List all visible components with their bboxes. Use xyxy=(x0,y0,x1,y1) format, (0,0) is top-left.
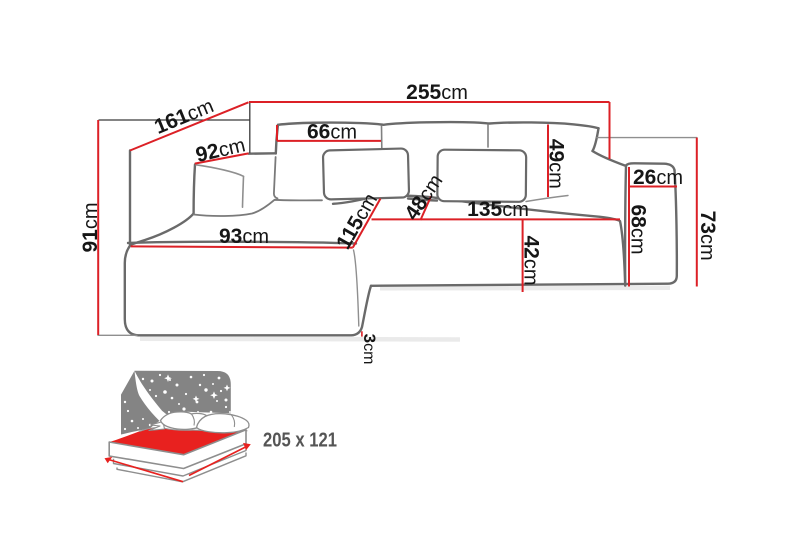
svg-text:42cm: 42cm xyxy=(520,235,543,285)
svg-text:91cm: 91cm xyxy=(79,202,102,252)
svg-text:66cm: 66cm xyxy=(307,121,357,144)
svg-text:73cm: 73cm xyxy=(696,211,719,261)
svg-text:135cm: 135cm xyxy=(467,198,529,221)
svg-text:68cm: 68cm xyxy=(627,204,650,254)
svg-text:255cm: 255cm xyxy=(406,81,468,104)
svg-text:26cm: 26cm xyxy=(633,166,683,189)
svg-text:49cm: 49cm xyxy=(545,139,568,189)
svg-text:93cm: 93cm xyxy=(219,225,269,248)
svg-text:3cm: 3cm xyxy=(360,334,379,365)
svg-text:205 x 121: 205 x 121 xyxy=(263,429,337,452)
